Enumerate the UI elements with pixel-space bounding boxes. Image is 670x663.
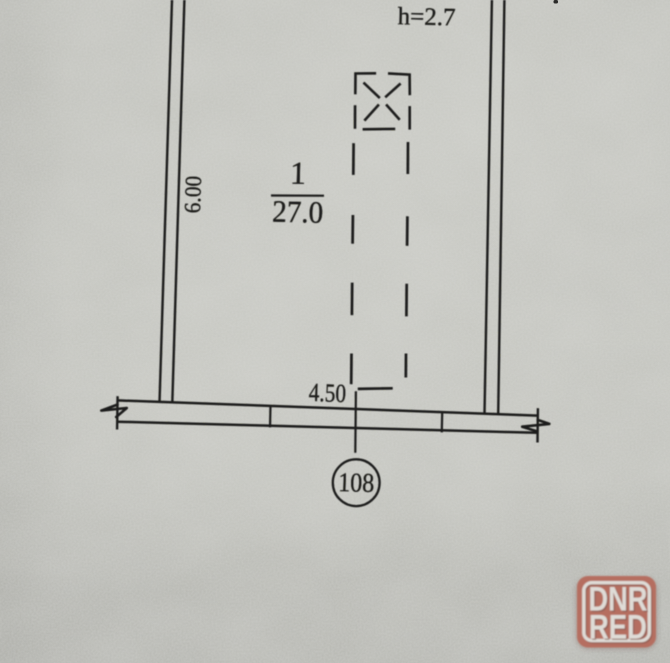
- svg-text:1: 1: [290, 155, 307, 191]
- svg-text:4.50: 4.50: [308, 379, 346, 409]
- svg-text:27.0: 27.0: [272, 194, 324, 230]
- svg-text:h=2.7: h=2.7: [397, 3, 455, 31]
- svg-text:RED: RED: [589, 608, 647, 646]
- svg-text:108: 108: [338, 467, 375, 499]
- svg-text:6.00: 6.00: [179, 175, 206, 213]
